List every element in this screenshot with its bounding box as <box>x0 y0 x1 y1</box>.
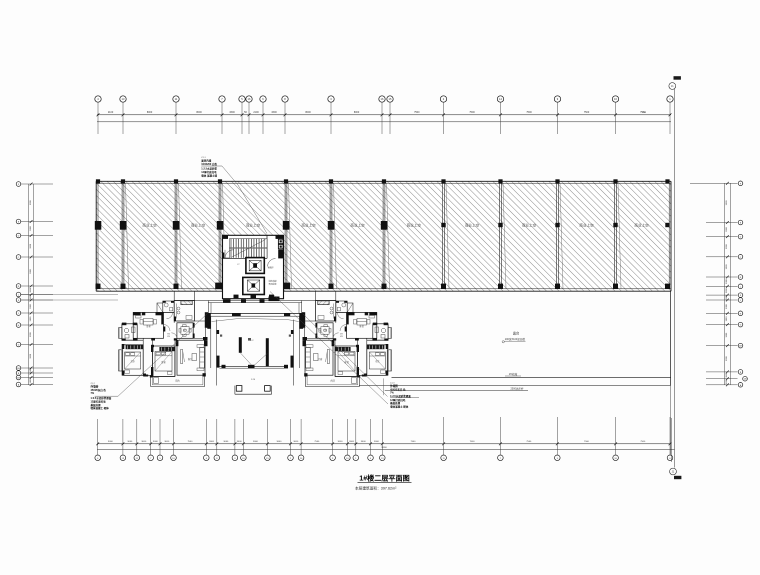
svg-text:2500高栏杆: 2500高栏杆 <box>510 387 524 391</box>
svg-text:商业上空: 商业上空 <box>246 223 261 228</box>
svg-text:3000: 3000 <box>293 441 299 443</box>
svg-text:外墙砖: 外墙砖 <box>390 384 398 388</box>
svg-text:58200: 58200 <box>381 447 387 449</box>
svg-text:8000: 8000 <box>305 111 311 114</box>
svg-text:商业上空: 商业上空 <box>465 223 480 228</box>
svg-text:7500: 7500 <box>526 111 532 114</box>
svg-text:1:2.5水泥砂浆罩面: 1:2.5水泥砂浆罩面 <box>91 396 112 400</box>
svg-text:3000: 3000 <box>141 441 147 443</box>
svg-text:100宽X100深凹槽: 100宽X100深凹槽 <box>505 337 526 341</box>
svg-text:1#楼二层平面图: 1#楼二层平面图 <box>359 474 409 483</box>
svg-text:商业上空: 商业上空 <box>191 223 206 228</box>
svg-text:墙体混凝土 砌体: 墙体混凝土 砌体 <box>390 405 409 409</box>
svg-text:45X95灰白 色: 45X95灰白 色 <box>390 387 406 391</box>
svg-text:7500: 7500 <box>470 441 476 443</box>
svg-text:3000: 3000 <box>361 441 367 443</box>
svg-text:3000: 3000 <box>153 441 159 443</box>
svg-text:基层处理: 基层处理 <box>90 403 102 407</box>
svg-text:商业上空: 商业上空 <box>142 223 157 228</box>
svg-text:基层处理: 基层处理 <box>389 401 401 405</box>
svg-text:J: J <box>740 300 741 302</box>
svg-text:8000: 8000 <box>147 111 153 114</box>
svg-text:3000: 3000 <box>374 441 380 443</box>
svg-text:3000: 3000 <box>349 441 355 443</box>
svg-text:12厚打底扫毛: 12厚打底扫毛 <box>390 398 406 402</box>
svg-text:3000: 3000 <box>164 441 170 443</box>
svg-text:3000: 3000 <box>237 441 243 443</box>
svg-text:3000: 3000 <box>209 441 215 443</box>
svg-text:7500: 7500 <box>411 441 417 443</box>
svg-text:露台: 露台 <box>513 330 519 335</box>
svg-text:7500: 7500 <box>314 441 320 443</box>
svg-text:墙体 混凝土墙: 墙体 混凝土墙 <box>201 173 217 177</box>
svg-text:3000: 3000 <box>108 441 114 443</box>
svg-text:商业上空: 商业上空 <box>301 223 316 228</box>
svg-text:7500: 7500 <box>187 441 193 443</box>
svg-text:3000: 3000 <box>277 441 283 443</box>
svg-text:商业上空: 商业上空 <box>407 223 422 228</box>
svg-text:J: J <box>18 313 19 315</box>
svg-text:7500: 7500 <box>584 111 590 114</box>
svg-text:墙体混凝土 砌体: 墙体混凝土 砌体 <box>91 406 110 410</box>
svg-text:7500: 7500 <box>469 111 475 114</box>
svg-text:外墙砖: 外墙砖 <box>91 384 99 388</box>
svg-text:7500: 7500 <box>526 441 532 443</box>
svg-text:2100: 2100 <box>108 111 114 114</box>
svg-text:1%找坡: 1%找坡 <box>509 372 518 376</box>
svg-text:7500: 7500 <box>414 111 420 114</box>
svg-text:商业上空: 商业上空 <box>350 223 365 228</box>
svg-text:面砖内墙: 面砖内墙 <box>201 158 212 162</box>
svg-text:本层建筑面积：397.62m²: 本层建筑面积：397.62m² <box>355 485 397 490</box>
svg-text:8000: 8000 <box>196 111 202 114</box>
svg-text:商业上空: 商业上空 <box>522 223 537 228</box>
svg-text:7500: 7500 <box>640 441 646 443</box>
svg-text:1:2.5水泥砂浆罩面: 1:2.5水泥砂浆罩面 <box>390 394 411 398</box>
svg-text:7500: 7500 <box>584 441 590 443</box>
svg-text:商业上空: 商业上空 <box>579 223 594 228</box>
svg-text:100X200 白色: 100X200 白色 <box>201 162 217 166</box>
svg-text:8000: 8000 <box>354 111 360 114</box>
svg-text:45X95灰白 色: 45X95灰白 色 <box>91 388 107 392</box>
svg-text:12厚打底扫毛: 12厚打底扫毛 <box>201 170 217 174</box>
svg-text:2100: 2100 <box>253 111 259 114</box>
svg-text:12厚打底扫毛: 12厚打底扫毛 <box>91 399 107 403</box>
svg-text:3300: 3300 <box>271 111 277 114</box>
svg-text:3000: 3000 <box>253 441 259 443</box>
svg-text:3000: 3000 <box>127 441 133 443</box>
svg-text:3300: 3300 <box>229 111 235 114</box>
svg-text:3000: 3000 <box>223 441 229 443</box>
svg-text:商业上空: 商业上空 <box>634 223 649 228</box>
svg-text:3000: 3000 <box>338 441 344 443</box>
